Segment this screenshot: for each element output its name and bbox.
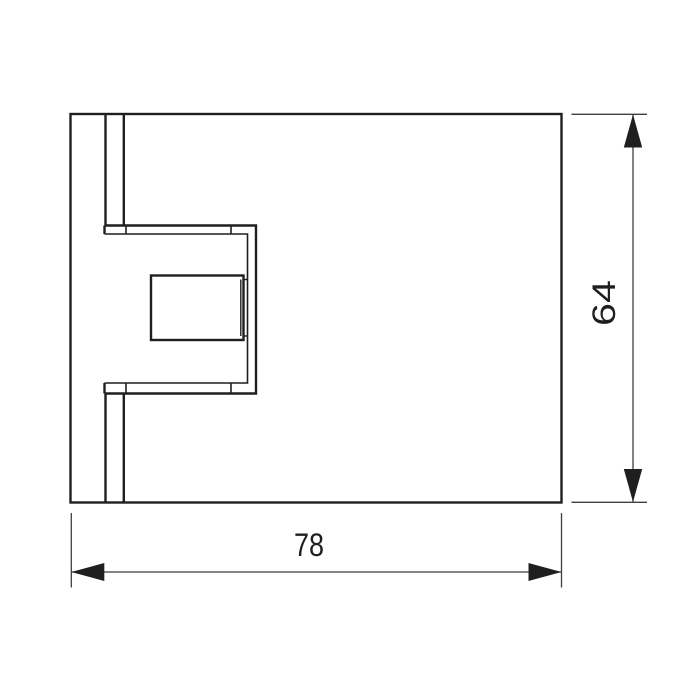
outer-body-outline bbox=[71, 114, 562, 503]
height-dimension-label: 64 bbox=[586, 280, 622, 326]
width-dimension-label: 78 bbox=[294, 527, 324, 563]
height-arrow-bottom bbox=[624, 469, 642, 502]
inner-insert-outline bbox=[151, 276, 244, 341]
width-arrow-right bbox=[529, 563, 562, 581]
dimension-drawing: 78 64 bbox=[0, 0, 700, 700]
width-arrow-left bbox=[71, 563, 104, 581]
technical-drawing-canvas: 78 64 bbox=[0, 0, 700, 700]
part-outline-group bbox=[71, 114, 562, 503]
height-arrow-top bbox=[624, 115, 642, 148]
